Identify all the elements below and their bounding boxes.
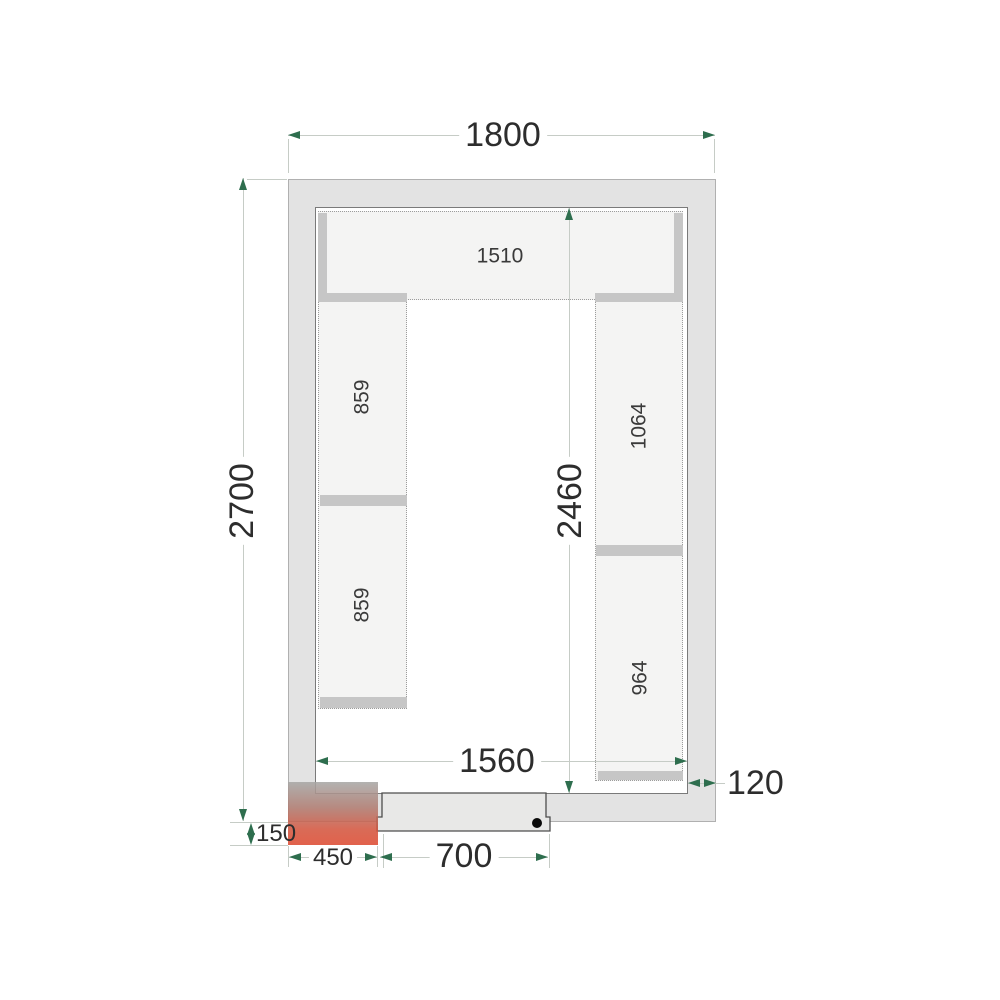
shelf-left-upper-length-label: 859 — [352, 379, 373, 414]
shelf-band — [320, 495, 407, 506]
arrow-left-icon — [380, 853, 392, 861]
extension-line — [247, 179, 287, 180]
arrow-up-icon — [239, 178, 247, 190]
extension-line — [714, 139, 715, 173]
shelf-band — [674, 213, 683, 301]
arrow-right-icon — [365, 853, 377, 861]
dim-unit-offset-label: 150 — [256, 822, 296, 846]
shelf-left-lower-length-label: 859 — [352, 587, 373, 622]
shelf-column-right — [595, 300, 683, 781]
extension-line — [383, 834, 384, 868]
arrow-left-icon — [688, 779, 700, 787]
shelf-band — [318, 213, 327, 301]
arrow-right-icon — [675, 757, 687, 765]
arrow-down-icon — [247, 833, 255, 845]
shelf-right-lower-length-label: 964 — [630, 660, 651, 695]
arrow-left-icon — [288, 131, 300, 139]
arrow-up-icon — [565, 208, 573, 220]
dim-wall-thickness-label: 120 — [727, 766, 784, 800]
corner-unit-heat-zone — [288, 782, 378, 845]
shelf-band — [320, 697, 407, 708]
door-leaf — [374, 790, 556, 836]
extension-line — [549, 834, 550, 868]
shelf-band — [318, 293, 407, 302]
dim-unit-width-label: 450 — [309, 846, 357, 870]
shelf-band — [595, 293, 683, 302]
cold-room-plan-drawing: 1510 859 859 1064 964 2460 1560 1800 270… — [0, 0, 1000, 1000]
shelf-band — [598, 771, 683, 780]
dim-door-width-label: 700 — [430, 839, 499, 873]
arrow-left-icon — [289, 853, 301, 861]
arrow-down-icon — [239, 809, 247, 821]
shelf-top-length-label: 1510 — [477, 246, 524, 267]
door-panel — [377, 793, 550, 831]
arrow-left-icon — [316, 757, 328, 765]
arrow-right-icon — [536, 853, 548, 861]
shelf-band — [596, 545, 683, 556]
dim-outer-depth-label: 2700 — [225, 457, 259, 545]
dim-inner-depth-label: 2460 — [553, 457, 587, 545]
arrow-right-icon — [703, 131, 715, 139]
dim-inner-width-label: 1560 — [453, 744, 541, 778]
shelf-right-upper-length-label: 1064 — [629, 403, 650, 450]
dim-outer-width-label: 1800 — [459, 118, 547, 152]
arrow-right-icon — [704, 779, 716, 787]
arrow-down-icon — [565, 781, 573, 793]
door-handle-icon — [532, 818, 542, 828]
extension-line — [288, 139, 289, 173]
